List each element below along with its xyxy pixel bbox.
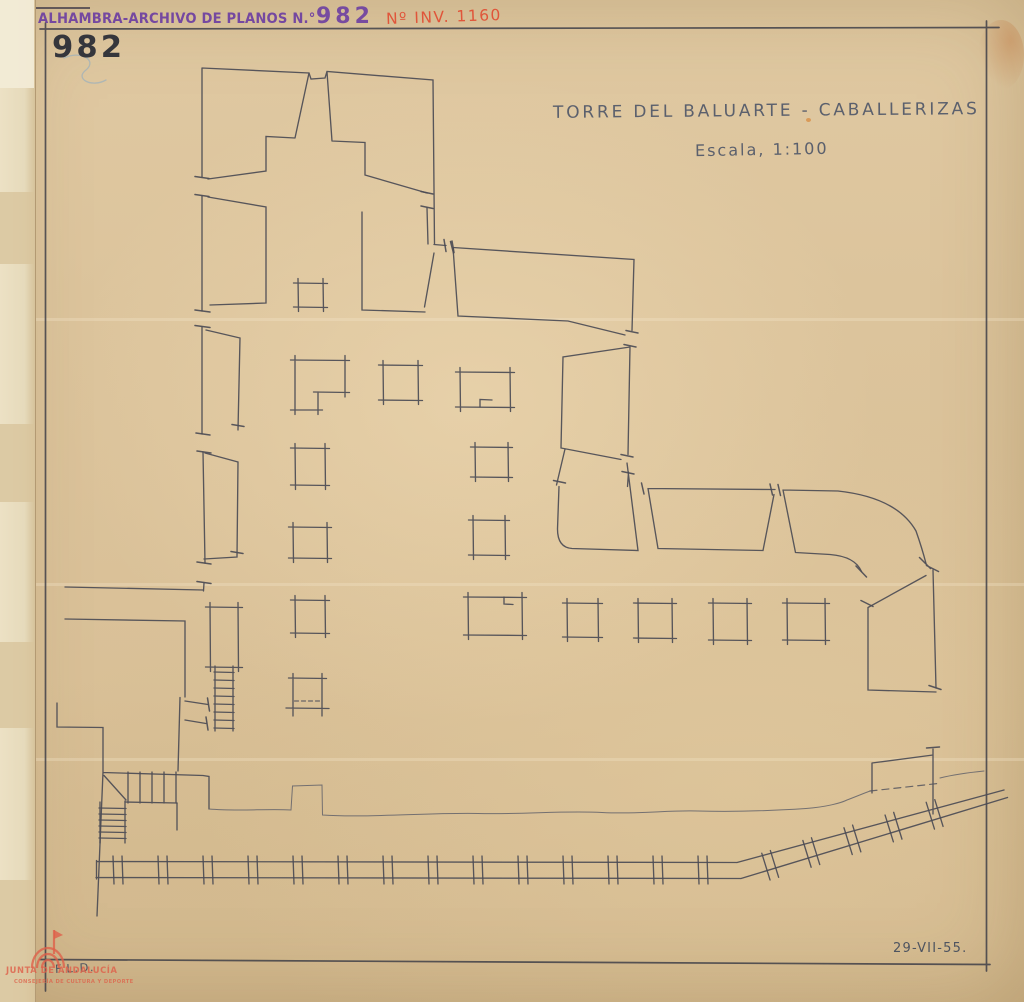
scale-label: Escala, 1:100: [695, 139, 829, 160]
watermark-org-text: JUNTA DE ANDALUCÍA: [6, 966, 118, 976]
floor-plan-drawing: [0, 0, 1024, 1002]
dashed-lines: [295, 701, 939, 791]
plan-number-handwritten: 982: [52, 30, 125, 65]
plan-title: TORRE DEL BALUARTE - CABALLERIZAS: [553, 99, 980, 123]
watermark-dept-text: CONSEJERÍA DE CULTURA Y DEPORTE: [14, 979, 134, 985]
junta-watermark: JUNTA DE ANDALUCÍA CONSEJERÍA DE CULTURA…: [0, 924, 190, 996]
terrain-line: [209, 771, 984, 816]
plan-date: 29-VII-55.: [893, 941, 967, 956]
piers-and-stairs: [99, 279, 943, 885]
archive-stamp-number: 982: [316, 4, 374, 29]
stamp-border-line: [36, 7, 90, 9]
door-tick-marks: [195, 177, 941, 749]
archive-stamp-label: ALHAMBRA-ARCHIVO DE PLANOS N.°: [38, 11, 315, 27]
sheet-frame: [40, 21, 999, 991]
scanned-plan-sheet: ALHAMBRA-ARCHIVO DE PLANOS N.° 982 Nº IN…: [0, 0, 1024, 1002]
